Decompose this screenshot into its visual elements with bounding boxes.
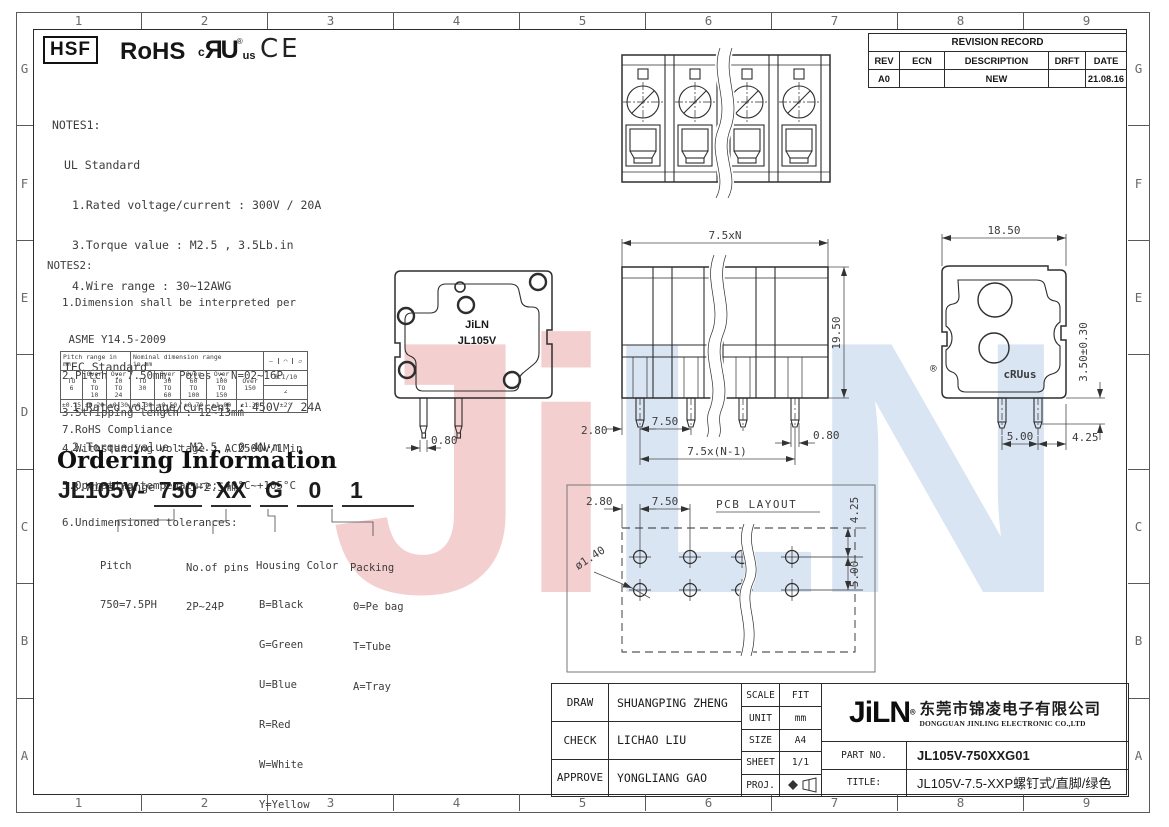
color-option: W=White <box>256 759 338 772</box>
row-dim-left: 2.80 <box>581 424 608 437</box>
revision-header: DRFT <box>1048 52 1085 69</box>
notes1-title: NOTES1: <box>52 119 321 132</box>
grid-ref: 2 <box>141 794 267 811</box>
ordering-title: Ordering Information <box>57 447 337 474</box>
draw-value: SHUANGPING ZHENG <box>608 684 741 721</box>
color-option: Y=Yellow <box>256 799 338 812</box>
grid-ref: G <box>16 12 33 125</box>
row-dim-span: 7.5x(N-1) <box>687 445 747 458</box>
pcb-dim-row: 5.00 <box>848 561 861 588</box>
tol-range: Over 6 TO 10 <box>83 371 107 400</box>
pcb-dim-top: 4.25 <box>848 497 861 524</box>
pcb-dim-hole: ø1.40 <box>573 544 608 573</box>
unit-label: UNIT <box>741 706 779 728</box>
company-block: JiLN® 东莞市锦凌电子有限公司 DONGGUAN JINLING ELECT… <box>821 684 1128 741</box>
company-name-en: DONGGUAN JINLING ELECTRONIC CO.,LTD <box>919 719 1101 728</box>
revision-title: REVISION RECORD <box>868 33 1127 52</box>
side-dim-width: 18.50 <box>987 224 1020 237</box>
grid-ref: 5 <box>519 12 645 29</box>
grid-ref: E <box>16 240 33 354</box>
row-dim-pitch: 7.50 <box>652 415 679 428</box>
tolerance-table: Pitch range in mm Nominal dimension rang… <box>60 351 308 413</box>
color-option: G=Green <box>256 639 338 652</box>
ul-standard-heading: UL Standard <box>52 159 321 172</box>
revision-date: 21.08.16 <box>1085 70 1126 87</box>
revision-header-row: REV ECN DESCRIPTION DRFT DATE <box>868 52 1127 70</box>
side-ul-mark: cRUus <box>1003 368 1036 381</box>
partno-value: JL105V-750XXG01 <box>906 741 1128 769</box>
side-view-drawing: ® 18.50 cRUus 3.50±0.30 5.00 4.25 <box>928 222 1158 462</box>
note-line: 1.Rated voltage/current : 300V / 20A <box>52 199 321 212</box>
tol-value: ±0.30 <box>131 399 155 412</box>
tol-range: Over 10 TO 24 <box>107 371 131 400</box>
pitch-legend: Pitch 750=7.5PH <box>100 533 157 639</box>
ce-mark-icon: CE <box>260 34 301 64</box>
grid-ref: 1 <box>16 12 141 29</box>
rohs-logo: RoHS <box>120 38 185 66</box>
grid-ref: 1 <box>16 794 141 811</box>
hsf-logo-text: HSF <box>43 36 98 64</box>
tol-range: Over 30 TO 60 <box>155 371 181 400</box>
revision-header: DATE <box>1085 52 1126 69</box>
tol-value: ±0.30 <box>107 399 131 412</box>
color-option: R=Red <box>256 719 338 732</box>
scale-value: FIT <box>779 684 821 706</box>
grid-ref: 7 <box>771 12 897 29</box>
pitch-value: 750=7.5PH <box>100 599 157 612</box>
revision-header: DESCRIPTION <box>944 52 1048 69</box>
row-dim-pin: 0.80 <box>813 429 840 442</box>
housing-color-legend: Housing Color B=Black G=Green U=Blue R=R… <box>256 533 338 827</box>
approve-value: YONGLIANG GAO <box>608 759 741 796</box>
arc-icon: ⌒ <box>278 358 293 365</box>
grid-ref: G <box>1128 12 1149 125</box>
drawing-sheet: JiLN 123456789 123456789 GFEDCBA GFECBA … <box>0 0 1169 827</box>
note-line: 1.Dimension shall be interpreted per <box>47 297 303 309</box>
notes2-title: NOTES2: <box>47 260 303 272</box>
grid-ref: 3 <box>267 12 393 29</box>
grid-ref: 6 <box>645 12 771 29</box>
revision-ecn <box>899 70 944 87</box>
grid-ref: 8 <box>897 12 1023 29</box>
pcb-dim-left: 2.80 <box>586 495 613 508</box>
registered-watermark: ® <box>930 362 937 375</box>
title-label: TITLE: <box>821 769 906 797</box>
draw-label: DRAW <box>552 684 608 721</box>
side-dim-pins: 5.00 <box>1007 430 1034 443</box>
packing-option: A=Tray <box>350 681 404 694</box>
check-label: CHECK <box>552 721 608 758</box>
tol-value: ±2° <box>264 399 308 412</box>
grid-ref-top: 123456789 <box>16 12 1149 29</box>
hsf-logo: HSF <box>43 36 98 64</box>
company-logo: JiLN <box>849 696 910 730</box>
front-brand-text: JiLN <box>465 319 489 331</box>
pcb-layout-drawing: 2.80 7.50 PCB LAYOUT 4.25 5.00 ø1.40 <box>558 478 888 683</box>
tol-value: ±0.20 <box>83 399 107 412</box>
pitch-label: Pitch <box>100 560 157 573</box>
tol-pitch-header: Pitch range in mm <box>61 352 131 371</box>
title-value: JL105V-7.5-XXP螺钉式/直脚/绿色 <box>906 769 1128 797</box>
revision-header: ECN <box>899 52 944 69</box>
projection-symbol-icon <box>779 774 821 796</box>
front-model-text: JL105V <box>458 335 497 347</box>
size-label: SIZE <box>741 729 779 751</box>
tol-geometry-symbols: —⌒▱ <box>264 358 307 365</box>
ul-recognized-icon: cЯU®us <box>198 36 255 65</box>
revision-drft <box>1048 70 1085 87</box>
note-rohs-compliance: 7.RoHS Compliance <box>62 424 173 436</box>
tol-value: 0.1/10 <box>264 371 308 386</box>
approve-label: APPROVE <box>552 759 608 796</box>
packing-option: T=Tube <box>350 641 404 654</box>
housing-color-label: Housing Color <box>256 560 338 573</box>
grid-ref: C <box>16 469 33 583</box>
grid-ref: D <box>16 354 33 468</box>
flatness-icon: ▱ <box>292 358 307 365</box>
sheet-label: SHEET <box>741 751 779 773</box>
tol-range: Over 60 TO 100 <box>181 371 207 400</box>
note-line: ASME Y14.5-2009 <box>47 334 303 346</box>
pins-legend: No.of pins 2P~24P <box>186 535 249 641</box>
front-dim-pin: 0.80 <box>431 434 458 447</box>
pcb-dim-pitch: 7.50 <box>652 495 679 508</box>
grid-ref: A <box>16 698 33 812</box>
front-view-drawing: JiLN JL105V 0.80 <box>380 260 565 465</box>
side-dim-right: 3.50±0.30 <box>1077 322 1090 382</box>
tol-nominal-header: Nominal dimension range in mm <box>131 352 264 371</box>
grid-ref: 4 <box>393 12 519 29</box>
grid-ref: 4 <box>393 794 519 811</box>
pins-label: No.of pins <box>186 562 249 575</box>
revision-description: NEW <box>944 70 1048 87</box>
grid-ref-left: GFEDCBA <box>16 12 33 812</box>
color-option: B=Black <box>256 599 338 612</box>
sheet-value: 1/1 <box>779 751 821 773</box>
tol-range: Over 150 <box>237 371 264 400</box>
check-value: LICHAO LIU <box>608 721 741 758</box>
pcb-layout-title: PCB LAYOUT <box>716 498 797 511</box>
size-value: A4 <box>779 729 821 751</box>
grid-ref: 2 <box>141 12 267 29</box>
color-option: U=Blue <box>256 679 338 692</box>
revision-rev: A0 <box>869 70 899 87</box>
tol-range: TO 6 <box>61 371 83 400</box>
angle-icon: ∠ <box>264 385 308 399</box>
proj-label: PROJ. <box>741 774 779 796</box>
tol-range: Over 100 TO 150 <box>207 371 237 400</box>
revision-header: REV <box>869 52 899 69</box>
packing-option: 0=Pe bag <box>350 601 404 614</box>
top-view-drawing <box>612 38 847 206</box>
grid-ref: F <box>16 125 33 239</box>
tol-value: ±0.70 <box>181 399 207 412</box>
tol-value: ±1.00 <box>207 399 237 412</box>
grid-ref: B <box>1128 583 1149 697</box>
partno-label: PART NO. <box>821 741 906 769</box>
registered-icon: ® <box>910 708 915 718</box>
row-dim-height: 19.50 <box>830 316 843 349</box>
side-dim-edge: 4.25 <box>1072 431 1099 444</box>
revision-record-table: REVISION RECORD REV ECN DESCRIPTION DRFT… <box>868 33 1127 88</box>
packing-label: Packing <box>350 562 404 575</box>
company-name-cn: 东莞市锦凌电子有限公司 <box>919 697 1101 719</box>
row-dim-width: 7.5xN <box>708 229 741 242</box>
tol-value: ±0.15 <box>61 399 83 412</box>
scale-label: SCALE <box>741 684 779 706</box>
pins-value: 2P~24P <box>186 601 249 614</box>
grid-ref: C <box>1128 469 1149 583</box>
title-block: DRAW SHUANGPING ZHENG CHECK LICHAO LIU A… <box>551 683 1129 797</box>
grid-ref: B <box>16 583 33 697</box>
packing-legend: Packing 0=Pe bag T=Tube A=Tray <box>350 535 404 721</box>
tol-value: ±1.30 <box>237 399 264 412</box>
unit-value: mm <box>779 706 821 728</box>
tol-range: TO 30 <box>131 371 155 400</box>
straightness-icon: — <box>264 358 278 365</box>
tol-value: ±0.50 <box>155 399 181 412</box>
row-view-drawing: 7.5xN 19.50 <box>575 215 870 470</box>
grid-ref: A <box>1128 698 1149 812</box>
revision-data-row: A0 NEW 21.08.16 <box>868 70 1127 88</box>
